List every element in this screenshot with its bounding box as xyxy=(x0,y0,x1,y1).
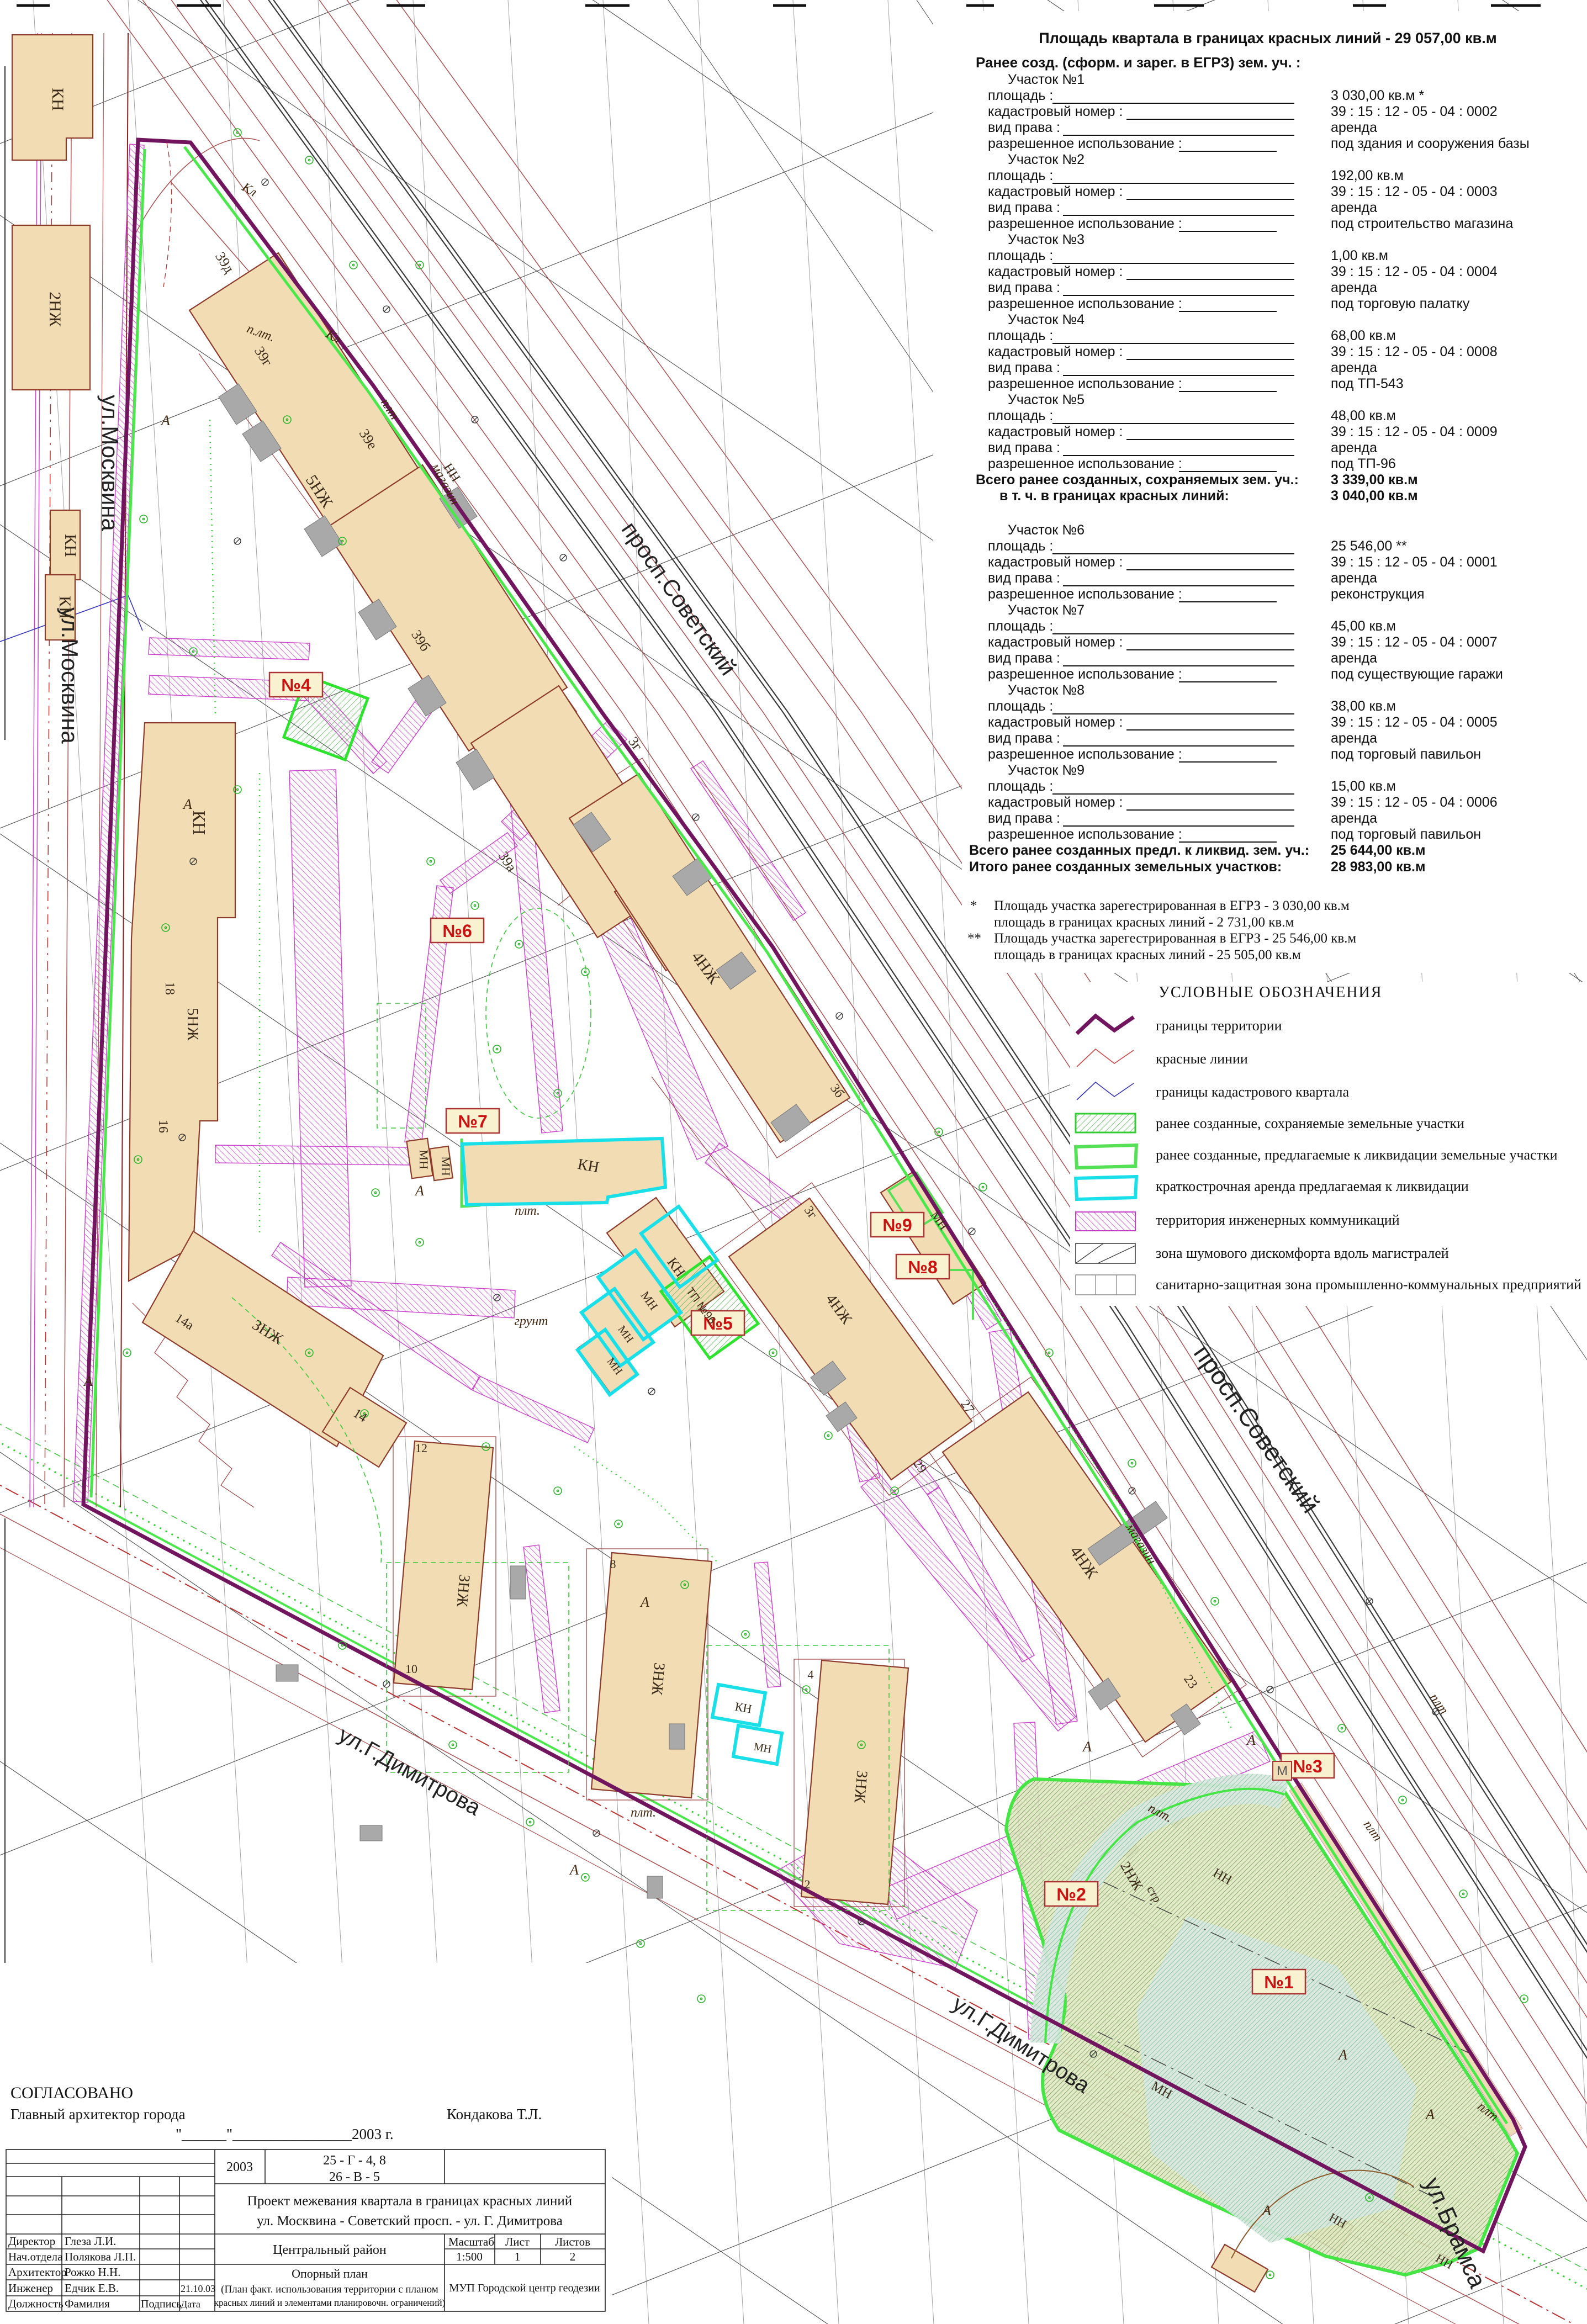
svg-text:12: 12 xyxy=(415,1441,427,1455)
svg-text:Дата: Дата xyxy=(181,2299,200,2310)
svg-text:КН: КН xyxy=(56,596,74,619)
svg-text:А: А xyxy=(182,796,192,812)
svg-text:2: 2 xyxy=(805,1877,811,1891)
svg-text:Участок №5: Участок №5 xyxy=(1008,392,1085,407)
svg-text:вид права :: вид права : xyxy=(988,120,1060,135)
svg-text:под ТП-543: под ТП-543 xyxy=(1331,376,1404,391)
svg-text:26 - В - 5: 26 - В - 5 xyxy=(329,2170,380,2184)
svg-text:под ТП-96: под ТП-96 xyxy=(1331,456,1396,472)
svg-text:2003: 2003 xyxy=(226,2160,253,2174)
svg-text:А: А xyxy=(569,1862,579,1878)
svg-text:3 030,00 кв.м *: 3 030,00 кв.м * xyxy=(1331,88,1425,103)
svg-text:Всего ранее созданных предл. к: Всего ранее созданных предл. к ликвид. з… xyxy=(969,843,1309,858)
svg-text:ЗНЖ: ЗНЖ xyxy=(850,1770,870,1804)
svg-text:А: А xyxy=(83,1373,93,1389)
svg-text:45,00 кв.м: 45,00 кв.м xyxy=(1331,618,1396,634)
svg-text:площадь :: площадь : xyxy=(988,248,1053,263)
svg-text:192,00 кв.м: 192,00 кв.м xyxy=(1331,168,1404,183)
svg-text:№8: №8 xyxy=(908,1257,937,1277)
svg-text:Подпись: Подпись xyxy=(141,2298,181,2310)
svg-text:№6: №6 xyxy=(442,921,472,941)
svg-text:аренда: аренда xyxy=(1331,200,1377,215)
svg-text:39 : 15 : 12 - 05 - 04 : 0004: 39 : 15 : 12 - 05 - 04 : 0004 xyxy=(1331,264,1498,279)
svg-text:грунт: грунт xyxy=(515,1314,548,1328)
svg-text:Итого ранее созданных земельны: Итого ранее созданных земельных участков… xyxy=(969,859,1282,875)
svg-text:М: М xyxy=(1277,1764,1288,1778)
svg-text:1,00 кв.м: 1,00 кв.м xyxy=(1331,248,1388,263)
svg-text:№2: №2 xyxy=(1056,1884,1086,1904)
svg-text:аренда: аренда xyxy=(1331,811,1377,826)
svg-text:(План факт. использования терр: (План факт. использования территории с п… xyxy=(221,2284,438,2295)
svg-text:2НЖ: 2НЖ xyxy=(46,292,64,327)
svg-text:А: А xyxy=(1246,1732,1256,1748)
svg-text:48,00 кв.м: 48,00 кв.м xyxy=(1331,408,1396,423)
svg-text:39 : 15 : 12 - 05 - 04 : 0005: 39 : 15 : 12 - 05 - 04 : 0005 xyxy=(1331,714,1498,730)
svg-text:№4: №4 xyxy=(281,675,311,695)
svg-text:Полякова Л.П.: Полякова Л.П. xyxy=(65,2250,136,2263)
svg-text:А: А xyxy=(1261,2203,1271,2219)
svg-text:под торговый павильон: под торговый павильон xyxy=(1331,827,1481,842)
svg-text:39 : 15 : 12 - 05 - 04 : 0002: 39 : 15 : 12 - 05 - 04 : 0002 xyxy=(1331,104,1498,119)
svg-text:кадастровый номер :: кадастровый номер : xyxy=(988,714,1123,730)
svg-text:вид права :: вид права : xyxy=(988,730,1060,746)
svg-text:под торговый павильон: под торговый павильон xyxy=(1331,747,1481,762)
svg-text:Лист: Лист xyxy=(505,2235,530,2248)
svg-text:А: А xyxy=(1082,1739,1092,1755)
svg-text:Участок №7: Участок №7 xyxy=(1008,602,1085,618)
svg-text:плт.: плт. xyxy=(631,1806,656,1820)
svg-text:68,00 кв.м: 68,00 кв.м xyxy=(1331,328,1396,343)
svg-text:аренда: аренда xyxy=(1331,360,1377,375)
svg-text:площадь :: площадь : xyxy=(988,328,1053,343)
svg-text:39 : 15 : 12 - 05 - 04 : 0007: 39 : 15 : 12 - 05 - 04 : 0007 xyxy=(1331,634,1498,650)
svg-text:Инженер: Инженер xyxy=(8,2281,53,2295)
svg-text:СОГЛАСОВАНО: СОГЛАСОВАНО xyxy=(10,2084,133,2102)
svg-text:А: А xyxy=(414,1183,424,1199)
svg-text:А: А xyxy=(1337,2047,1347,2063)
svg-text:площадь в границах красных лин: площадь в границах красных линий - 25 50… xyxy=(994,947,1301,962)
svg-text:39 : 15 : 12 - 05 - 04 : 0001: 39 : 15 : 12 - 05 - 04 : 0001 xyxy=(1331,554,1498,570)
svg-text:25 546,00 **: 25 546,00 ** xyxy=(1331,538,1407,554)
svg-text:аренда: аренда xyxy=(1331,120,1377,135)
svg-text:ЗНЖ: ЗНЖ xyxy=(648,1662,668,1697)
svg-text:вид права :: вид права : xyxy=(988,200,1060,215)
svg-text:ранее созданные, сохраняемые з: ранее созданные, сохраняемые земельные у… xyxy=(1156,1115,1464,1131)
svg-text:разрешенное использование :: разрешенное использование : xyxy=(988,296,1182,311)
svg-text:А: А xyxy=(639,1594,649,1610)
svg-text:под торговую палатку: под торговую палатку xyxy=(1331,296,1470,311)
svg-text:"______"________________2003 г: "______"________________2003 г. xyxy=(176,2126,394,2142)
svg-text:4: 4 xyxy=(808,1667,814,1681)
svg-text:Должность: Должность xyxy=(8,2297,64,2310)
svg-text:ранее созданные, предлагаемые: ранее созданные, предлагаемые к ликвидац… xyxy=(1156,1147,1558,1163)
svg-text:территория инженерных коммуник: территория инженерных коммуникаций xyxy=(1156,1212,1400,1228)
svg-text:Ранее созд. (сформ. и зарег. в: Ранее созд. (сформ. и зарег. в ЕГРЗ) зем… xyxy=(976,54,1301,71)
svg-text:вид права :: вид права : xyxy=(988,280,1060,295)
svg-text:аренда: аренда xyxy=(1331,280,1377,295)
svg-text:площадь :: площадь : xyxy=(988,698,1053,714)
svg-text:Площадь квартала в границах кр: Площадь квартала в границах красных лини… xyxy=(1039,30,1496,46)
svg-text:Рожко Н.Н.: Рожко Н.Н. xyxy=(65,2265,120,2279)
svg-text:КН: КН xyxy=(61,534,80,557)
svg-text:39 : 15 : 12 - 05 - 04 : 0008: 39 : 15 : 12 - 05 - 04 : 0008 xyxy=(1331,344,1498,359)
svg-text:площадь :: площадь : xyxy=(988,408,1053,423)
svg-text:кадастровый номер :: кадастровый номер : xyxy=(988,554,1123,570)
svg-text:Проект межевания квартала в гр: Проект межевания квартала в границах кра… xyxy=(247,2194,572,2209)
svg-text:39 : 15 : 12 - 05 - 04 : 0009: 39 : 15 : 12 - 05 - 04 : 0009 xyxy=(1331,424,1498,440)
svg-text:кадастровый номер :: кадастровый номер : xyxy=(988,184,1123,199)
svg-text:Нач.отдела: Нач.отдела xyxy=(8,2250,63,2263)
svg-text:Директор: Директор xyxy=(8,2235,55,2248)
svg-text:площадь :: площадь : xyxy=(988,88,1053,103)
svg-text:под строительство магазина: под строительство магазина xyxy=(1331,216,1513,231)
svg-text:площадь :: площадь : xyxy=(988,168,1053,183)
svg-text:зона шумового дискомфорта вдол: зона шумового дискомфорта вдоль магистра… xyxy=(1156,1245,1449,1261)
svg-text:границы территории: границы территории xyxy=(1156,1018,1282,1034)
svg-text:УСЛОВНЫЕ ОБОЗНАЧЕНИЯ: УСЛОВНЫЕ ОБОЗНАЧЕНИЯ xyxy=(1158,984,1382,1001)
svg-text:25 644,00 кв.м: 25 644,00 кв.м xyxy=(1331,843,1425,858)
svg-text:28 983,00 кв.м: 28 983,00 кв.м xyxy=(1331,859,1425,875)
svg-text:ул.Москвина: ул.Москвина xyxy=(97,395,123,531)
svg-text:кадастровый номер :: кадастровый номер : xyxy=(988,634,1123,650)
svg-text:8: 8 xyxy=(610,1557,616,1571)
svg-text:Участок №1: Участок №1 xyxy=(1008,72,1085,87)
svg-text:кадастровый номер :: кадастровый номер : xyxy=(988,424,1123,440)
svg-text:площадь :: площадь : xyxy=(988,779,1053,794)
svg-text:Глеза Л.И.: Глеза Л.И. xyxy=(65,2235,116,2248)
svg-text:Кондакова Т.Л.: Кондакова Т.Л. xyxy=(447,2106,542,2122)
svg-text:*: * xyxy=(970,898,977,913)
svg-text:38,00 кв.м: 38,00 кв.м xyxy=(1331,698,1396,714)
svg-text:39 : 15 : 12 - 05 - 04 : 0006: 39 : 15 : 12 - 05 - 04 : 0006 xyxy=(1331,795,1498,810)
svg-text:красные линии: красные линии xyxy=(1156,1051,1248,1067)
svg-text:**: ** xyxy=(967,931,981,946)
svg-text:разрешенное использование :: разрешенное использование : xyxy=(988,376,1182,391)
svg-text:разрешенное использование :: разрешенное использование : xyxy=(988,747,1182,762)
svg-text:18: 18 xyxy=(162,982,177,995)
svg-text:КН: КН xyxy=(189,811,209,835)
svg-text:Масштаб: Масштаб xyxy=(448,2235,494,2248)
svg-text:вид права :: вид права : xyxy=(988,650,1060,666)
svg-text:аренда: аренда xyxy=(1331,570,1377,586)
svg-text:разрешенное использование :: разрешенное использование : xyxy=(988,136,1182,151)
svg-text:вид права :: вид права : xyxy=(988,570,1060,586)
svg-text:вид права :: вид права : xyxy=(988,360,1060,375)
svg-text:39 : 15 : 12 - 05 - 04 : 0003: 39 : 15 : 12 - 05 - 04 : 0003 xyxy=(1331,184,1498,199)
svg-text:в т. ч. в границах красных ли: в т. ч. в границах красных линий: xyxy=(999,488,1229,504)
svg-text:красных линий и элементами пла: красных линий и элементами планировочн. … xyxy=(214,2297,446,2308)
svg-text:плт.: плт. xyxy=(515,1204,540,1218)
svg-text:Главный архитектор города: Главный архитектор города xyxy=(10,2106,186,2122)
svg-text:Всего ранее созданных, сохраня: Всего ранее созданных, сохраняемых зем. … xyxy=(976,472,1299,488)
svg-text:кадастровый номер :: кадастровый номер : xyxy=(988,104,1123,119)
svg-text:Участок №2: Участок №2 xyxy=(1008,152,1085,167)
svg-text:16: 16 xyxy=(156,1120,170,1133)
svg-text:аренда: аренда xyxy=(1331,440,1377,456)
svg-text:2: 2 xyxy=(570,2250,576,2263)
svg-text:Участок №8: Участок №8 xyxy=(1008,682,1085,698)
svg-text:3 040,00 кв.м: 3 040,00 кв.м xyxy=(1331,488,1418,504)
svg-text:ЗНЖ: ЗНЖ xyxy=(453,1574,473,1608)
svg-text:кадастровый номер :: кадастровый номер : xyxy=(988,264,1123,279)
svg-text:№7: №7 xyxy=(458,1111,487,1131)
svg-text:аренда: аренда xyxy=(1331,650,1377,666)
svg-text:Участок №4: Участок №4 xyxy=(1008,312,1085,327)
svg-text:№9: №9 xyxy=(882,1215,912,1235)
svg-text:кадастровый номер :: кадастровый номер : xyxy=(988,795,1123,810)
svg-text:Едчик Е.В.: Едчик Е.В. xyxy=(65,2281,119,2295)
svg-text:разрешенное использование :: разрешенное использование : xyxy=(988,456,1182,472)
svg-text:разрешенное использование :: разрешенное использование : xyxy=(988,216,1182,231)
svg-text:санитарно-защитная зона промыш: санитарно-защитная зона промышленно-комм… xyxy=(1156,1277,1581,1293)
svg-text:разрешенное использование :: разрешенное использование : xyxy=(988,827,1182,842)
svg-text:МН: МН xyxy=(417,1150,431,1169)
svg-text:Архитектор: Архитектор xyxy=(8,2265,67,2279)
svg-text:под здания и сооружения базы: под здания и сооружения базы xyxy=(1331,136,1530,151)
svg-text:Участок №9: Участок №9 xyxy=(1008,763,1085,778)
svg-text:аренда: аренда xyxy=(1331,730,1377,746)
svg-text:Листов: Листов xyxy=(555,2235,590,2248)
svg-text:Площадь участка зарегестрирова: Площадь участка зарегестрированная в ЕГР… xyxy=(994,898,1350,913)
svg-text:ул.Москвина: ул.Москвина xyxy=(57,607,83,744)
svg-text:3 339,00 кв.м: 3 339,00 кв.м xyxy=(1331,472,1418,488)
svg-text:МУП Городской центр геодезии: МУП Городской центр геодезии xyxy=(449,2282,600,2294)
svg-text:вид права :: вид права : xyxy=(988,440,1060,456)
svg-text:разрешенное использование :: разрешенное использование : xyxy=(988,666,1182,682)
svg-text:площадь в границах красных лин: площадь в границах красных линий - 2 731… xyxy=(994,915,1294,930)
svg-text:25 - Г - 4, 8: 25 - Г - 4, 8 xyxy=(323,2153,386,2168)
svg-text:краткострочная аренда предлага: краткострочная аренда предлагаемая к лик… xyxy=(1156,1178,1469,1194)
svg-text:А: А xyxy=(1425,2106,1435,2122)
svg-text:5НЖ: 5НЖ xyxy=(184,1008,201,1041)
svg-text:Опорный план: Опорный план xyxy=(292,2267,368,2280)
svg-text:15,00 кв.м: 15,00 кв.м xyxy=(1331,779,1396,794)
svg-text:границы кадастрового квартала: границы кадастрового квартала xyxy=(1156,1084,1349,1100)
svg-text:разрешенное использование :: разрешенное использование : xyxy=(988,586,1182,602)
svg-text:Центральный район: Центральный район xyxy=(273,2243,387,2257)
svg-text:реконструкция: реконструкция xyxy=(1331,586,1425,602)
svg-text:под существующие гаражи: под существующие гаражи xyxy=(1331,666,1503,682)
svg-text:Участок №6: Участок №6 xyxy=(1008,522,1085,538)
svg-text:Площадь участка зарегестрирова: Площадь участка зарегестрированная в ЕГР… xyxy=(994,931,1356,946)
svg-text:1:500: 1:500 xyxy=(456,2250,483,2263)
svg-text:ул. Москвина - Советский просп: ул. Москвина - Советский просп. - ул. Г.… xyxy=(257,2214,563,2228)
svg-text:21.10.03: 21.10.03 xyxy=(181,2283,215,2294)
svg-text:кадастровый номер :: кадастровый номер : xyxy=(988,344,1123,359)
svg-text:А: А xyxy=(160,412,170,428)
svg-text:№3: №3 xyxy=(1293,1756,1322,1776)
svg-text:10: 10 xyxy=(405,1662,417,1676)
svg-text:КН: КН xyxy=(734,1700,753,1716)
svg-text:Фамилия: Фамилия xyxy=(65,2297,110,2310)
svg-text:площадь :: площадь : xyxy=(988,618,1053,634)
svg-text:вид права :: вид права : xyxy=(988,811,1060,826)
svg-text:№1: №1 xyxy=(1264,1972,1293,1992)
svg-text:МН: МН xyxy=(439,1156,453,1176)
svg-text:Участок №3: Участок №3 xyxy=(1008,232,1085,247)
svg-text:1: 1 xyxy=(515,2250,521,2263)
svg-text:площадь :: площадь : xyxy=(988,538,1053,554)
svg-text:КН: КН xyxy=(49,88,67,111)
